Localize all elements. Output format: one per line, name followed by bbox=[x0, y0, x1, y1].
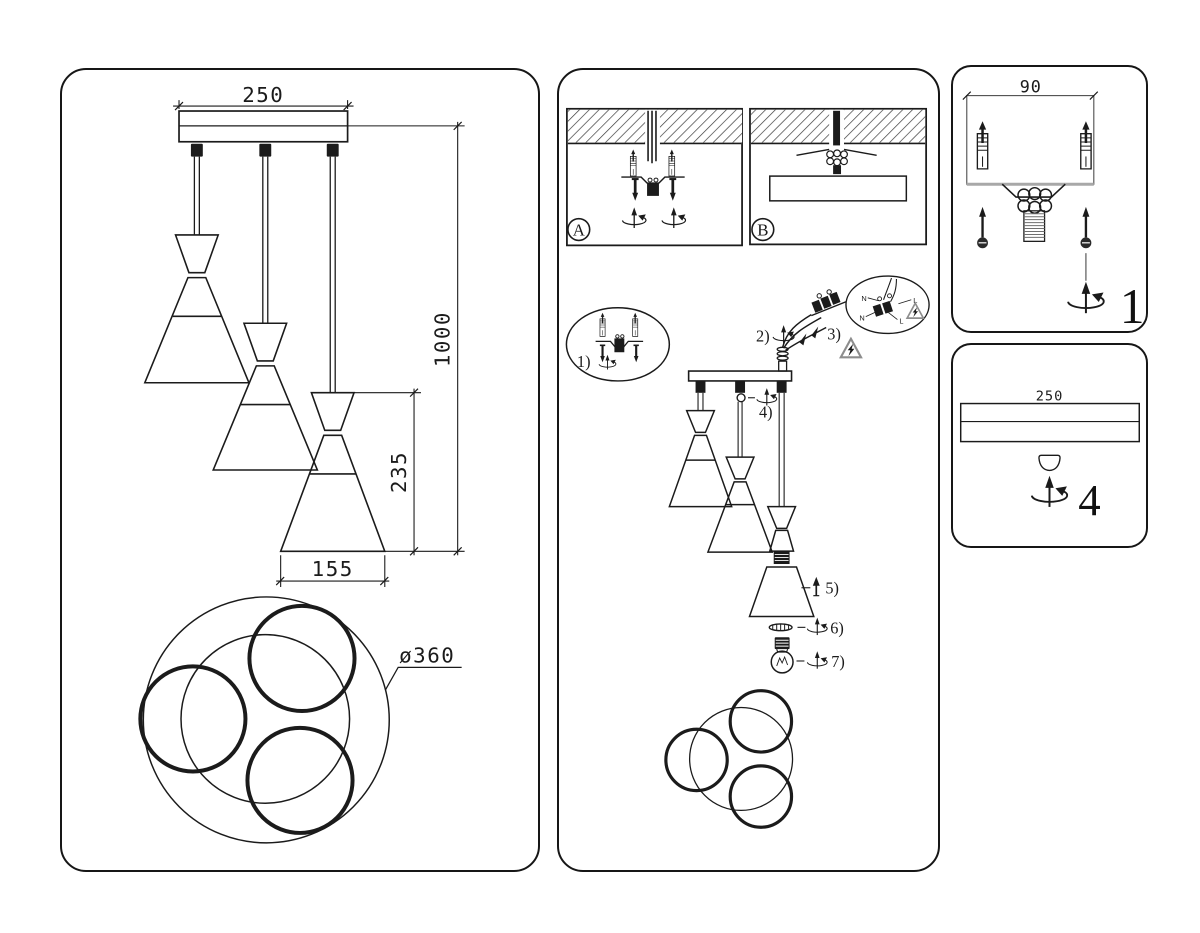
dimension-shade-height: 235 bbox=[354, 389, 421, 556]
pendant-shade-2 bbox=[213, 323, 317, 470]
assembly-canopy bbox=[689, 371, 792, 393]
wall-plug-icon bbox=[1081, 121, 1091, 169]
detail-number: 1 bbox=[1120, 279, 1145, 331]
detail-number: 4 bbox=[1078, 475, 1100, 525]
pendant-shade-3 bbox=[281, 393, 385, 552]
cable-grip bbox=[191, 144, 203, 157]
assembly-shade-3-exploded bbox=[749, 507, 813, 617]
step1-detail: 1) bbox=[566, 308, 669, 381]
shade-rim bbox=[140, 666, 245, 771]
threaded-rod bbox=[1024, 211, 1045, 242]
dim-235-label: 235 bbox=[387, 451, 411, 493]
hanging-cables bbox=[194, 157, 335, 393]
wall-plug-icon bbox=[630, 150, 636, 176]
dimension-shade-diameter: 155 bbox=[276, 555, 389, 587]
terminal-block bbox=[614, 338, 624, 352]
assembled-bottom-view bbox=[666, 691, 793, 828]
step6-retaining-ring: 6) bbox=[769, 618, 844, 638]
bracket-detail-panel: 90 1 bbox=[951, 65, 1148, 333]
warning-icon bbox=[907, 303, 923, 318]
step4-cord-adjuster: 4) bbox=[737, 388, 777, 421]
shade-rim bbox=[249, 606, 354, 711]
bracket-v bbox=[1002, 184, 1065, 197]
filament bbox=[777, 657, 788, 666]
wire-n-label: N bbox=[861, 294, 866, 303]
rotate-icon bbox=[662, 207, 685, 228]
dim-footprint-label: ø360 bbox=[399, 643, 455, 667]
step6-label: 6) bbox=[830, 618, 844, 637]
threaded-nipple bbox=[777, 347, 788, 371]
canopy-bar bbox=[179, 111, 348, 157]
terminal-block bbox=[647, 183, 659, 196]
shade-rim bbox=[730, 766, 791, 827]
step2-wiring: 2) 3) bbox=[756, 290, 861, 371]
mount-option-a: A bbox=[567, 109, 742, 246]
rotate-icon bbox=[1068, 282, 1104, 313]
bracket-nuts bbox=[1018, 188, 1051, 214]
rotate-icon bbox=[807, 651, 827, 668]
step4-label: 4) bbox=[759, 403, 773, 422]
rotate-icon bbox=[1032, 476, 1067, 507]
dimension-extent-box bbox=[967, 96, 1094, 185]
rotate-icon bbox=[807, 618, 827, 635]
canopy-bar bbox=[770, 176, 907, 201]
dimension-drawing: 250 bbox=[62, 70, 538, 870]
decorative-nut bbox=[1039, 455, 1060, 470]
dim-155-label: 155 bbox=[312, 557, 354, 581]
bottom-view: ø360 bbox=[140, 597, 461, 843]
wires bbox=[884, 278, 897, 302]
mount-b-label: B bbox=[757, 220, 768, 239]
wall-plug-icon bbox=[600, 313, 605, 337]
cable-grip bbox=[777, 381, 787, 393]
rotate-icon bbox=[773, 325, 794, 344]
step7-bulb: 7) bbox=[771, 637, 845, 673]
pendant-shade-1 bbox=[145, 235, 249, 383]
dimension-drawing-panel: 250 bbox=[60, 68, 540, 872]
mount-option-b: B bbox=[750, 109, 926, 245]
cord-ball bbox=[737, 394, 745, 402]
assembly-shade-2 bbox=[708, 457, 772, 552]
warning-icon bbox=[841, 339, 861, 358]
step7-label: 7) bbox=[831, 652, 845, 671]
canopy-bar bbox=[961, 404, 1140, 442]
installation-diagram: A B bbox=[559, 70, 938, 870]
step2-label: 2) bbox=[756, 326, 770, 345]
shade-rim bbox=[666, 729, 727, 790]
step3-detail: N L N L bbox=[846, 276, 929, 333]
bracket-detail-drawing: 90 1 bbox=[953, 67, 1146, 331]
dim-90-label: 90 bbox=[1020, 77, 1042, 97]
screw-icon bbox=[977, 207, 988, 248]
rotate-icon bbox=[622, 207, 645, 228]
dim-250-label: 250 bbox=[242, 83, 284, 107]
step5-set-pin: 5) bbox=[801, 577, 838, 598]
dim-1000-label: 1000 bbox=[431, 311, 455, 367]
screw-icon bbox=[669, 179, 676, 201]
shade-rim bbox=[730, 691, 791, 752]
installation-steps-panel: A B bbox=[557, 68, 940, 872]
assembly-shade-1 bbox=[669, 411, 731, 507]
cable-grip bbox=[696, 381, 706, 393]
mount-a-label: A bbox=[573, 220, 586, 239]
wall-plug-icon bbox=[669, 150, 675, 176]
wire-n2-label: N bbox=[859, 314, 864, 323]
shade-cone bbox=[749, 567, 813, 616]
mains-wires bbox=[833, 111, 840, 146]
wire-l2-label: L bbox=[899, 317, 903, 326]
wall-plug-icon bbox=[633, 313, 638, 337]
wall-plug-icon bbox=[977, 121, 987, 169]
bracket-nuts bbox=[827, 150, 848, 166]
dimension-canopy-width: 250 bbox=[173, 83, 353, 110]
shade-rim bbox=[247, 728, 352, 833]
canopy-detail-panel: 250 4 bbox=[951, 343, 1148, 548]
dim-250-label: 250 bbox=[1036, 389, 1064, 405]
cable-grip bbox=[735, 381, 745, 393]
step1-label: 1) bbox=[577, 352, 591, 371]
screw-icon bbox=[600, 345, 605, 362]
step3-label: 3) bbox=[827, 324, 841, 343]
cable-grip bbox=[327, 144, 339, 157]
screw-icon bbox=[634, 345, 639, 362]
leader-line bbox=[385, 667, 461, 690]
canopy-detail-drawing: 250 4 bbox=[953, 345, 1146, 546]
footprint-circle bbox=[143, 597, 389, 843]
step5-label: 5) bbox=[825, 579, 839, 598]
cable-grip bbox=[259, 144, 271, 157]
screw-icon bbox=[1081, 207, 1092, 248]
screw-icon bbox=[632, 179, 639, 201]
